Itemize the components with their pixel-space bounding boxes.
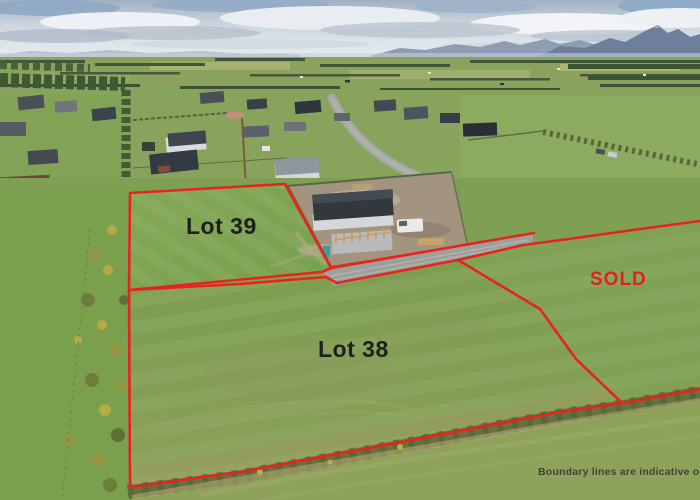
work-van bbox=[397, 218, 424, 232]
barn bbox=[463, 122, 497, 136]
house-under-construction bbox=[312, 189, 394, 231]
dirt-pile bbox=[226, 111, 244, 119]
left-paddock bbox=[0, 192, 128, 500]
timber-stack bbox=[418, 238, 444, 245]
shelterbelt-trees bbox=[0, 80, 125, 84]
parked-car bbox=[262, 146, 270, 151]
aerial-photo: Lot 39 Lot 38 SOLD Boundary lines are in… bbox=[0, 0, 700, 500]
timber-stack bbox=[352, 184, 372, 190]
aerial-photo-scene bbox=[0, 0, 700, 500]
